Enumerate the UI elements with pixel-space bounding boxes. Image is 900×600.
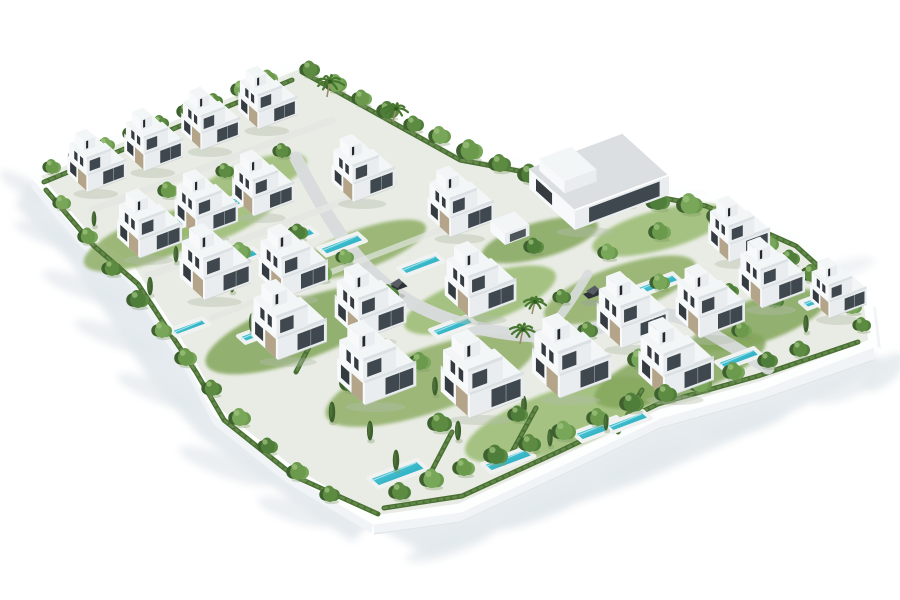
villa-contact-shadow: [338, 199, 386, 209]
villa-contact-shadow: [124, 255, 173, 265]
villa-contact-shadow: [259, 357, 316, 367]
villa-tower-window: [143, 119, 145, 127]
tree-highlight: [292, 225, 297, 230]
tree-highlight: [683, 196, 690, 203]
tree-highlight: [434, 128, 440, 134]
villa-tower-window: [252, 162, 254, 171]
tree-highlight: [494, 156, 500, 162]
tree-highlight: [654, 224, 660, 230]
cypress-highlight: [456, 423, 459, 437]
cypress-highlight: [522, 398, 525, 411]
tree-highlight: [47, 161, 52, 166]
villa-tower-window: [728, 208, 730, 217]
villa-tower-window: [257, 77, 259, 85]
palm-crown: [533, 300, 537, 304]
cypress-highlight: [604, 416, 606, 427]
cypress-highlight: [804, 317, 806, 329]
tree-highlight: [660, 386, 666, 392]
villa-tower-window: [449, 179, 451, 188]
villa-tower-window: [663, 332, 666, 343]
tree-highlight: [602, 245, 607, 250]
cypress-highlight: [394, 452, 397, 466]
tree-highlight: [654, 275, 659, 280]
cypress-highlight: [148, 279, 151, 292]
tree-highlight: [857, 319, 862, 324]
tree-highlight: [292, 464, 298, 470]
cypress-highlight: [92, 213, 94, 223]
villa-contact-shadow: [187, 147, 232, 157]
tree-highlight: [106, 261, 111, 266]
villa-contact-shadow: [244, 126, 289, 136]
villa-tower-window: [276, 294, 279, 305]
villa-contact-shadow: [556, 227, 613, 237]
villa-contact-shadow: [452, 315, 506, 325]
tree-highlight: [156, 323, 161, 328]
villa-contact-shadow: [816, 315, 859, 325]
villa-contact-shadow: [130, 168, 175, 178]
villa-tower-window: [362, 336, 365, 347]
tree-highlight: [433, 415, 439, 421]
tree-highlight: [132, 292, 138, 298]
tree-highlight: [304, 62, 309, 67]
villa-tower-window: [86, 140, 88, 148]
tree-highlight: [180, 350, 186, 356]
villa-contact-shadow: [540, 395, 600, 405]
villa-tower-window: [358, 277, 361, 287]
villa-tower-window: [828, 268, 830, 276]
tree-highlight: [489, 447, 495, 453]
cypress-highlight: [330, 404, 333, 418]
tree-highlight: [524, 436, 530, 442]
tree-highlight: [728, 364, 734, 370]
cypress-highlight: [548, 431, 550, 443]
tree-highlight: [340, 251, 345, 256]
cypress-highlight: [433, 379, 436, 392]
tree-highlight: [277, 145, 282, 150]
tree-highlight: [414, 354, 420, 360]
tree-highlight: [625, 395, 631, 401]
villa-tower-window: [281, 237, 283, 247]
villa-tower-window: [138, 201, 140, 210]
tree-highlight: [57, 197, 62, 202]
villa-tower-window: [203, 237, 206, 247]
palm-crown: [394, 107, 398, 111]
tree-highlight: [234, 410, 240, 416]
tree-highlight: [557, 423, 563, 429]
villa-contact-shadow: [187, 297, 241, 307]
villa-tower-window: [200, 98, 202, 106]
palm-crown: [328, 80, 332, 84]
villa-contact-shadow: [345, 402, 405, 412]
tree-highlight: [523, 166, 529, 172]
tree-highlight: [512, 407, 517, 412]
cypress-highlight: [368, 423, 371, 437]
tree-highlight: [235, 82, 240, 87]
tree-highlight: [356, 91, 361, 96]
villa-tower-window: [468, 255, 471, 265]
tree-highlight: [262, 439, 267, 444]
villa-tower-window: [195, 181, 197, 190]
palm-crown: [521, 328, 525, 332]
villa-development-render: [0, 0, 900, 600]
tree-highlight: [528, 239, 533, 244]
tree-highlight: [206, 381, 211, 386]
tree-highlight: [557, 291, 562, 296]
tree-highlight: [408, 117, 413, 122]
villa-tower-window: [467, 345, 470, 357]
tree-highlight: [324, 487, 329, 492]
villa-tower-window: [620, 285, 623, 295]
tree-highlight: [82, 229, 87, 234]
tree-highlight: [794, 342, 799, 347]
tree-highlight: [582, 323, 587, 328]
render-canvas: [0, 0, 900, 600]
tree-highlight: [463, 142, 470, 149]
tree-highlight: [806, 266, 812, 272]
cypress-highlight: [174, 248, 176, 259]
villa-tower-window: [557, 329, 560, 340]
tree-highlight: [458, 460, 464, 466]
tree-highlight: [425, 471, 431, 477]
villa-tower-window: [352, 146, 354, 155]
villa-contact-shadow: [746, 305, 796, 315]
villa-contact-shadow: [239, 213, 286, 223]
villa-contact-shadow: [73, 189, 118, 199]
tree-highlight: [220, 165, 225, 170]
tree-highlight: [592, 410, 598, 416]
villa-contact-shadow: [435, 234, 485, 244]
tree-highlight: [762, 353, 767, 358]
villa-tower-window: [760, 250, 762, 259]
tree-highlight: [162, 183, 167, 188]
tree-highlight: [394, 484, 400, 490]
villa-tower-window: [698, 277, 700, 287]
